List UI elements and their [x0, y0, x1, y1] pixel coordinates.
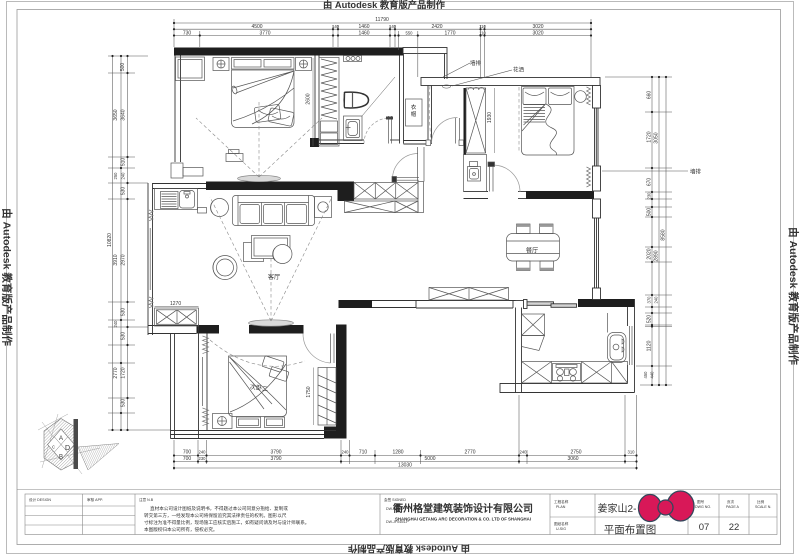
svg-text:510: 510 — [121, 158, 127, 167]
svg-text:DWG NO.: DWG NO. — [695, 505, 711, 509]
svg-text:140: 140 — [389, 24, 397, 29]
svg-text:11790: 11790 — [375, 17, 389, 23]
svg-text:由 Autodesk 教育版产品制作: 由 Autodesk 教育版产品制作 — [787, 227, 800, 365]
svg-text:A: A — [59, 436, 63, 442]
svg-text:U-SIG: U-SIG — [556, 527, 566, 531]
svg-text:700: 700 — [183, 456, 192, 462]
svg-text:2020: 2020 — [647, 248, 653, 259]
svg-text:工程名称: 工程名称 — [554, 499, 569, 504]
svg-text:4500: 4500 — [251, 24, 262, 30]
svg-text:3650: 3650 — [113, 109, 119, 120]
svg-text:530: 530 — [121, 399, 127, 408]
svg-text:本图版权归本公司所有，侵权必究。: 本图版权归本公司所有，侵权必究。 — [144, 526, 218, 533]
svg-text:1720: 1720 — [647, 131, 653, 142]
svg-text:由 Autodesk 教育版产品制作: 由 Autodesk 教育版产品制作 — [1, 208, 14, 346]
svg-text:D: D — [65, 445, 70, 452]
svg-text:500: 500 — [647, 208, 653, 217]
svg-text:SHANGHAI GETANG ARC DECORATION: SHANGHAI GETANG ARC DECORATION & CO. LTD… — [395, 517, 531, 522]
svg-text:PLAN: PLAN — [556, 505, 566, 509]
svg-text:3770: 3770 — [259, 30, 270, 36]
svg-text:110: 110 — [479, 30, 486, 35]
svg-text:10820: 10820 — [107, 233, 113, 247]
svg-text:230: 230 — [647, 192, 652, 200]
svg-text:墙排: 墙排 — [690, 168, 702, 176]
svg-text:由 Autodesk 教育版产品制作: 由 Autodesk 教育版产品制作 — [347, 543, 470, 554]
svg-text:3020: 3020 — [532, 30, 543, 36]
svg-text:1280: 1280 — [392, 450, 403, 456]
svg-text:240: 240 — [342, 450, 350, 455]
svg-text:3790: 3790 — [270, 456, 281, 462]
svg-text:230: 230 — [199, 456, 207, 461]
svg-text:3640: 3640 — [121, 109, 127, 120]
svg-text:寸标注为准不得量比例，现场施工应核实后施工，如有疑问请及时与: 寸标注为准不得量比例，现场施工应核实后施工，如有疑问请及时与设计师联系。 — [144, 519, 309, 526]
svg-text:710: 710 — [359, 450, 368, 456]
svg-text:转交第三方，一经发现本公司将保留追究其法律责任的权利。图形以: 转交第三方，一经发现本公司将保留追究其法律责任的权利。图形以尺 — [144, 512, 287, 519]
svg-text:22: 22 — [729, 522, 740, 533]
svg-text:8580: 8580 — [661, 229, 667, 240]
svg-text:07: 07 — [699, 522, 710, 533]
svg-text:帽: 帽 — [411, 110, 417, 118]
svg-text:240: 240 — [113, 320, 118, 328]
svg-text:直材本公司设计图纸及说明书，不得题过本公司同意分抱给、复制或: 直材本公司设计图纸及说明书，不得题过本公司同意分抱给、复制或 — [150, 505, 288, 512]
svg-text:1270: 1270 — [170, 301, 181, 307]
svg-text:3060: 3060 — [567, 456, 578, 462]
svg-text:550: 550 — [406, 30, 414, 35]
svg-text:会签 SIGNED: 会签 SIGNED — [384, 497, 406, 502]
svg-text:700: 700 — [183, 450, 192, 456]
svg-text:PAGE A: PAGE A — [726, 505, 740, 509]
svg-text:520: 520 — [647, 315, 653, 324]
svg-text:图纸名称: 图纸名称 — [554, 521, 569, 526]
svg-text:次卧二: 次卧二 — [249, 383, 268, 394]
svg-text:比例: 比例 — [757, 499, 765, 504]
svg-text:1460: 1460 — [358, 30, 369, 36]
svg-text:衣: 衣 — [411, 103, 417, 111]
svg-text:设计 DESIGN: 设计 DESIGN — [29, 497, 51, 502]
svg-text:1770: 1770 — [444, 30, 455, 36]
svg-text:500: 500 — [120, 63, 126, 72]
svg-text:3910: 3910 — [113, 254, 119, 265]
svg-text:3050: 3050 — [654, 132, 660, 143]
svg-text:530: 530 — [121, 332, 127, 341]
svg-text:2750: 2750 — [570, 450, 581, 456]
svg-text:3020: 3020 — [532, 24, 543, 30]
svg-text:3790: 3790 — [270, 450, 281, 456]
svg-text:2770: 2770 — [113, 367, 119, 378]
svg-text:2970: 2970 — [121, 254, 127, 265]
svg-text:530: 530 — [121, 187, 127, 196]
svg-text:2890: 2890 — [654, 250, 660, 261]
svg-text:240: 240 — [520, 450, 528, 455]
svg-text:衢州格堂建筑装饰设计有限公司: 衢州格堂建筑装饰设计有限公司 — [393, 502, 533, 515]
svg-text:客厅: 客厅 — [268, 273, 280, 281]
svg-text:1930: 1930 — [487, 112, 493, 123]
svg-text:墙排: 墙排 — [470, 59, 482, 67]
svg-text:670: 670 — [647, 178, 653, 187]
svg-text:370: 370 — [647, 296, 652, 304]
svg-text:SCALE N.: SCALE N. — [755, 505, 771, 509]
svg-text:由 Autodesk 教育版产品制作: 由 Autodesk 教育版产品制作 — [323, 0, 446, 10]
svg-text:图号: 图号 — [697, 499, 705, 504]
svg-text:页次: 页次 — [727, 499, 735, 504]
svg-text:餐厅: 餐厅 — [526, 247, 538, 255]
svg-text:1750: 1750 — [306, 386, 312, 397]
svg-text:140: 140 — [332, 24, 340, 29]
svg-text:B: B — [59, 455, 63, 461]
svg-text:530: 530 — [121, 308, 127, 317]
svg-text:注意 N.B: 注意 N.B — [139, 497, 154, 502]
svg-text:5000: 5000 — [424, 456, 435, 462]
svg-text:审核 APP.: 审核 APP. — [87, 497, 103, 502]
svg-text:1720: 1720 — [121, 367, 127, 378]
svg-text:2600: 2600 — [306, 93, 312, 104]
svg-text:660: 660 — [647, 91, 653, 100]
svg-text:2420: 2420 — [431, 24, 442, 30]
svg-text:姜家山2-: 姜家山2- — [598, 502, 637, 515]
svg-text:240: 240 — [121, 172, 126, 180]
svg-text:13030: 13030 — [398, 463, 412, 469]
svg-text:240: 240 — [654, 296, 659, 304]
svg-text:1120: 1120 — [647, 340, 653, 351]
svg-text:2770: 2770 — [464, 450, 475, 456]
svg-text:440: 440 — [650, 371, 655, 379]
svg-text:110: 110 — [479, 24, 486, 29]
svg-text:平面布置图: 平面布置图 — [604, 524, 657, 536]
svg-text:250: 250 — [113, 172, 118, 180]
svg-text:450: 450 — [643, 371, 648, 379]
svg-text:310: 310 — [628, 450, 636, 455]
svg-text:240: 240 — [199, 450, 207, 455]
svg-text:730: 730 — [183, 30, 192, 36]
svg-text:1460: 1460 — [358, 24, 369, 30]
svg-text:花洒: 花洒 — [513, 66, 525, 74]
